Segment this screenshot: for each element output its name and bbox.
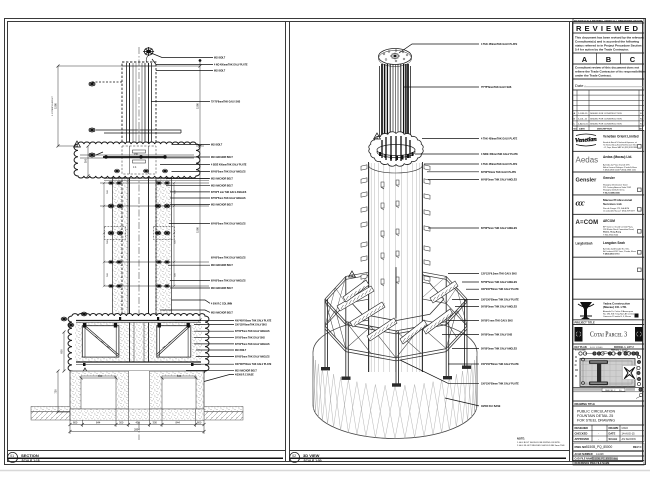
svg-text:50*50*5 mm THK GALV SHS: 50*50*5 mm THK GALV SHS — [481, 320, 513, 323]
svg-text:450: 450 — [136, 421, 141, 425]
svg-text:M10 BOLT: M10 BOLT — [235, 350, 247, 352]
svg-text:DRAWING TITLE: DRAWING TITLE — [575, 402, 596, 406]
svg-text:800: 800 — [197, 421, 202, 425]
svg-text:500: 500 — [107, 189, 109, 193]
svg-text:C: C — [574, 124, 576, 126]
svg-text:PARCEL 1, LOT 2: PARCEL 1, LOT 2 — [611, 349, 628, 352]
svg-text:300: 300 — [119, 421, 124, 425]
svg-text:844: 844 — [177, 374, 182, 378]
svg-text:Shanghai Information Tower: Shanghai Information Tower — [603, 184, 628, 187]
svg-text:Venetian: Venetian — [575, 137, 598, 145]
svg-text:8/F Tower 2, Grand Central Pla: 8/F Tower 2, Grand Central Plaza, — [603, 226, 634, 229]
svg-text:M10 ANCHOR BOLT: M10 ANCHOR BOLT — [211, 311, 233, 314]
svg-text:4 THK 450mmTHK GALV PLATE: 4 THK 450mmTHK GALV PLATE — [481, 138, 518, 141]
svg-text:60*60*5 mm THK GALV ANGLES: 60*60*5 mm THK GALV ANGLES — [211, 191, 247, 194]
svg-text:SECTION: SECTION — [21, 453, 39, 458]
svg-text:Avenida da Amizade No. 555,: Avenida da Amizade No. 555, — [603, 248, 630, 251]
svg-text:4/2500 R.C BASE: 4/2500 R.C BASE — [481, 405, 501, 408]
svg-text:150*150*50mm THK GALV PLATE: 150*150*50mm THK GALV PLATE — [481, 363, 519, 366]
svg-text:400*200*50mm THK GALV PLATE: 400*200*50mm THK GALV PLATE — [481, 288, 519, 291]
svg-text:4 SIDE 450mmTHK GALV PLATE: 4 SIDE 450mmTHK GALV PLATE — [211, 164, 247, 167]
svg-text:300: 300 — [84, 158, 88, 163]
svg-text:Aedas (Macau) Ltd.: Aedas (Macau) Ltd. — [603, 155, 632, 159]
svg-text:1. ALL BOLT SHOULD BE FIXING: 1. ALL BOLT SHOULD BE FIXING ON SITE. — [517, 441, 561, 444]
svg-text:75*75*8mmTHK GALV SHS: 75*75*8mmTHK GALV SHS — [481, 86, 512, 89]
svg-text:PUBLIC CIRCULATION: PUBLIC CIRCULATION — [577, 410, 615, 414]
svg-text:150*150*50mm THK GALV PLATE: 150*150*50mm THK GALV PLATE — [481, 382, 519, 385]
svg-text:KC: KC — [640, 124, 643, 126]
svg-text:ccc: ccc — [576, 198, 586, 208]
svg-text:400*400*50mm THK GALV PLATE: 400*400*50mm THK GALV PLATE — [235, 320, 272, 323]
svg-text:KC: KC — [640, 118, 643, 120]
svg-text:M10 BOLT: M10 BOLT — [214, 71, 226, 73]
svg-text:ISSUED FOR CONSTRUCTION: ISSUED FOR CONSTRUCTION — [590, 113, 622, 115]
svg-text:T 86.21.6886.5050: T 86.21.6886.5050 — [603, 192, 621, 194]
svg-text:50*50*5mm THK GALV ANGLES: 50*50*5mm THK GALV ANGLES — [481, 347, 517, 350]
svg-text:M10 ANCHOR BOLT: M10 ANCHOR BOLT — [235, 369, 257, 372]
svg-text:under the Trade Contract.: under the Trade Contract. — [575, 74, 612, 78]
svg-text:60*60*5mm THK GALV ANGLES: 60*60*5mm THK GALV ANGLES — [235, 330, 270, 333]
svg-text:Rua de Xangai 175, Edf ACM: Rua de Xangai 175, Edf ACM — [603, 207, 629, 210]
svg-text:M10 ANCHOR BOLT: M10 ANCHOR BOLT — [211, 204, 233, 207]
svg-text:CHECKED: CHECKED — [575, 431, 588, 435]
svg-text:REVIEWED: REVIEWED — [576, 24, 641, 33]
svg-text:300: 300 — [153, 421, 158, 425]
svg-text:FOR STEEL DRAWING: FOR STEEL DRAWING — [577, 419, 615, 423]
svg-text:Langdon Seah: Langdon Seah — [603, 241, 625, 245]
svg-text:AECOM: AECOM — [603, 219, 615, 223]
svg-text:SCALE 1:15: SCALE 1:15 — [22, 459, 40, 463]
svg-text:60*60*5mm THK GALV ANGLES: 60*60*5mm THK GALV ANGLES — [211, 280, 246, 283]
svg-text:500: 500 — [175, 239, 177, 243]
svg-text:150*150*50mm THK GALV PLATE: 150*150*50mm THK GALV PLATE — [481, 299, 519, 302]
svg-text:(Macau) CO. LTD.: (Macau) CO. LTD. — [603, 305, 627, 309]
svg-text:DATE: DATE — [609, 431, 616, 435]
svg-text:The Venetian Macao-Resort-Hote: The Venetian Macao-Resort-Hotel Executiv… — [603, 144, 637, 147]
svg-text:4 500 R.C COLUMN: 4 500 R.C COLUMN — [211, 302, 232, 305]
svg-text:DRAWN: DRAWN — [609, 426, 619, 430]
svg-text:60*60*5mm THK GALV ANGLES: 60*60*5mm THK GALV ANGLES — [211, 197, 246, 200]
svg-text:60*60*50mm THK GALV PLATE: 60*60*50mm THK GALV PLATE — [481, 171, 517, 174]
svg-text:PARCEL 1, LOT 2: PARCEL 1, LOT 2 — [614, 346, 634, 349]
svg-text:211 Century Avenue Suite 2502: 211 Century Avenue Suite 2502 — [603, 186, 632, 189]
svg-text:5150B_PQ_85000: 5150B_PQ_85000 — [586, 445, 612, 449]
svg-text:1-JUN-15: 1-JUN-15 — [578, 113, 588, 115]
svg-text:APPROVED: APPROVED — [575, 437, 590, 441]
svg-text:KEY PLAN: KEY PLAN — [575, 346, 587, 349]
svg-text:500: 500 — [107, 272, 109, 276]
svg-text:SCALE 1:50: SCALE 1:50 — [304, 459, 322, 463]
svg-text:4 THK 450mmTHK GALV PLATE: 4 THK 450mmTHK GALV PLATE — [481, 43, 518, 46]
svg-text:02: 02 — [292, 454, 296, 458]
svg-text:B: B — [606, 55, 612, 64]
svg-text:3D VIEW: 3D VIEW — [303, 453, 320, 458]
svg-text:ACAD NUMBER: ACAD NUMBER — [575, 453, 593, 456]
svg-text:Shatin, Hong Kong: Shatin, Hong Kong — [603, 231, 622, 234]
svg-text:FOUNTAIN DETAIL 25: FOUNTAIN DETAIL 25 — [577, 414, 613, 418]
svg-text:1586: 1586 — [196, 103, 200, 109]
svg-text:4 SIDE 450mmTHK GALV PLATE: 4 SIDE 450mmTHK GALV PLATE — [481, 153, 518, 156]
svg-text:Gensler: Gensler — [576, 178, 598, 184]
svg-text:A=COM: A=COM — [576, 220, 599, 226]
svg-text:LangdonSeah: LangdonSeah — [576, 241, 593, 246]
svg-text:Date :: Date : — [575, 83, 586, 88]
svg-text:Gensler: Gensler — [603, 176, 616, 180]
svg-text:4 THK 450mmTHK GALV PLATE: 4 THK 450mmTHK GALV PLATE — [481, 163, 518, 166]
svg-text:-: - — [598, 438, 599, 441]
svg-text:REFERENCE DWG FILE NAME: REFERENCE DWG FILE NAME — [575, 462, 610, 465]
svg-text:50*50*5mm THK GALV ANGLES: 50*50*5mm THK GALV ANGLES — [481, 306, 517, 309]
svg-text:844: 844 — [98, 374, 103, 378]
svg-text:750: 750 — [54, 389, 58, 394]
svg-text:12 andar A-B, Macau T (853) 2: 12 andar A-B, Macau T (853) 2878 3377 — [603, 210, 636, 213]
svg-text:Venetian Orient Limited: Venetian Orient Limited — [603, 135, 639, 139]
svg-text:4-AUG-15: 4-AUG-15 — [578, 123, 589, 126]
svg-text:1586: 1586 — [196, 227, 200, 233]
svg-text:844: 844 — [176, 421, 181, 425]
svg-text:SCALE: SCALE — [609, 437, 618, 441]
svg-text:T (853) 2833 1710: T (853) 2833 1710 — [603, 254, 620, 256]
svg-text:T (853) 2833 1113 F (853) 283: T (853) 2833 1113 F (853) 2833 1115 — [603, 170, 637, 172]
svg-text:4/2500 R.C BASE: 4/2500 R.C BASE — [235, 373, 254, 376]
svg-text:Comercio 19 andar E, F, Macau: Comercio 19 andar E, F, Macau — [603, 316, 631, 318]
svg-text:125*125*6.3mm THK GALV SHS: 125*125*6.3mm THK GALV SHS — [481, 273, 517, 276]
svg-text:500: 500 — [175, 272, 177, 276]
svg-text:844: 844 — [96, 421, 101, 425]
svg-text:3-JUL-15: 3-JUL-15 — [578, 118, 588, 120]
svg-text:2. ALL FILLET WELDED SHOULD B: 2. ALL FILLET WELDED SHOULD BE 3mm THK. — [517, 444, 565, 447]
svg-text:138 Shatin Rural Committee Roa: 138 Shatin Rural Committee Road, — [603, 228, 634, 231]
svg-text:75*75*8mmTHK GALV SHS: 75*75*8mmTHK GALV SHS — [211, 101, 241, 104]
svg-text:AS SHOWN: AS SHOWN — [622, 437, 636, 441]
svg-text:DO NOT SCALE DRAWING. VERIFY A: DO NOT SCALE DRAWING. VERIFY ALL DIMENSI… — [574, 19, 643, 23]
svg-text:60*60*5mm THK GALV ANGLES: 60*60*5mm THK GALV ANGLES — [235, 343, 270, 346]
svg-text:1 STOREY HEIGHT: 1 STOREY HEIGHT — [52, 96, 54, 116]
svg-text:M10 BOLT: M10 BOLT — [211, 145, 223, 147]
svg-text:800: 800 — [73, 421, 78, 425]
svg-text:A: A — [574, 112, 576, 115]
svg-text:50*50*5mm THK GALV SHS: 50*50*5mm THK GALV SHS — [481, 333, 512, 336]
svg-text:14-028: 14-028 — [596, 453, 604, 456]
svg-text:GWO: GWO — [622, 426, 628, 430]
svg-text:Aedas: Aedas — [576, 156, 599, 165]
svg-text:01: 01 — [10, 454, 14, 458]
svg-text:60*60*5mm THK GALV ANGLES: 60*60*5mm THK GALV ANGLES — [481, 227, 517, 230]
svg-text:No. 180, Edf. Tong Nam Ah Cent: No. 180, Edf. Tong Nam Ah Central — [603, 313, 635, 316]
svg-text:PARCEL 2: PARCEL 2 — [605, 389, 616, 392]
svg-text:Services Ltd.: Services Ltd. — [603, 202, 622, 206]
svg-text:M10 ANCHOR BOLT: M10 ANCHOR BOLT — [211, 264, 233, 267]
svg-text:5150B_PC_85000.dwg: 5150B_PC_85000.dwg — [593, 457, 618, 460]
svg-text:600: 600 — [60, 349, 64, 354]
svg-text:60*60*5mm THK GALV ANGLES: 60*60*5mm THK GALV ANGLES — [211, 171, 246, 174]
svg-text:KC: KC — [640, 113, 643, 115]
svg-text:60*60*5mm THK GALV ANGLES: 60*60*5mm THK GALV ANGLES — [235, 356, 270, 359]
svg-text:REV C: REV C — [633, 445, 642, 449]
svg-text:60*60*5mm THK GALV ANGLES: 60*60*5mm THK GALV ANGLES — [481, 179, 517, 182]
svg-text:150*150*8mmTHK GALV SHS: 150*150*8mmTHK GALV SHS — [235, 324, 267, 327]
svg-text:N.T.S 1:1500: N.T.S 1:1500 — [575, 350, 586, 352]
svg-text:ISSUED FOR CONSTRUCTION: ISSUED FOR CONSTRUCTION — [590, 124, 622, 126]
svg-text:CAD FILE NAME: CAD FILE NAME — [575, 457, 594, 460]
svg-text:NOTE:: NOTE: — [517, 437, 525, 441]
svg-text:M10 ANCHOR BOLT: M10 ANCHOR BOLT — [211, 178, 233, 181]
svg-text:60*60*5mm THK GALV ANGLES: 60*60*5mm THK GALV ANGLES — [211, 257, 246, 260]
svg-text:-: - — [598, 432, 599, 435]
svg-text:COTAI PARCEL 3: COTAI PARCEL 3 — [590, 331, 627, 339]
svg-text:M10 ANCHOR BOLT: M10 ANCHOR BOLT — [211, 156, 233, 159]
svg-text:2894: 2894 — [134, 428, 140, 432]
svg-text:Estrada da Baia de N. Senhora: Estrada da Baia de N. Senhora de Esperan… — [603, 141, 637, 144]
svg-text:A: A — [582, 55, 588, 64]
svg-text:1586: 1586 — [54, 103, 58, 109]
svg-text:Edificio Comercial Rodrigues 1: Edificio Comercial Rodrigues 12 andar A,… — [603, 166, 637, 169]
svg-text:60*60*5mm THK GALV ANGLES: 60*60*5mm THK GALV ANGLES — [211, 222, 246, 225]
svg-text:Avenida da Praia Grande 599,: Avenida da Praia Grande 599, — [603, 164, 630, 167]
svg-text:- L2, Taipa, Macau SAR Tel:: - L2, Taipa, Macau SAR Tel: (853) 8118 2… — [603, 146, 638, 149]
svg-text:B: B — [574, 118, 576, 120]
svg-text:150: 150 — [134, 153, 139, 156]
svg-text:50*50*5mm THK GALV ANGLES: 50*50*5mm THK GALV ANGLES — [481, 281, 517, 284]
svg-text:Alameda Dr. Carlos D'Assumpcao: Alameda Dr. Carlos D'Assumpcao — [603, 310, 634, 313]
svg-text:4 NO 450mmTHK GALV PLATE: 4 NO 450mmTHK GALV PLATE — [214, 64, 248, 67]
svg-text:ISSUED FOR CONSTRUCTION: ISSUED FOR CONSTRUCTION — [590, 118, 622, 120]
svg-text:5.4 for action by the Trade Co: 5.4 for action by the Trade Contractor. — [575, 48, 629, 52]
svg-text:14-AUG-15: 14-AUG-15 — [622, 431, 636, 435]
svg-text:M10 BOLT: M10 BOLT — [214, 58, 226, 60]
svg-text:400*400*50mm THK GALV PLATE: 400*400*50mm THK GALV PLATE — [235, 363, 272, 366]
svg-text:PROJECT TITLE: PROJECT TITLE — [575, 321, 595, 325]
svg-text:C: C — [630, 55, 636, 64]
svg-text:50*50*5mm THK GALV SHS: 50*50*5mm THK GALV SHS — [235, 336, 265, 339]
svg-text:DESIGNED: DESIGNED — [575, 426, 589, 430]
svg-text:T 852.3922.9000: T 852.3922.9000 — [603, 234, 619, 236]
svg-text:500: 500 — [107, 239, 109, 243]
svg-text:M10 ANCHOR BOLT: M10 ANCHOR BOLT — [211, 184, 233, 187]
svg-text:M10 ANCHOR BOLT: M10 ANCHOR BOLT — [211, 287, 233, 290]
